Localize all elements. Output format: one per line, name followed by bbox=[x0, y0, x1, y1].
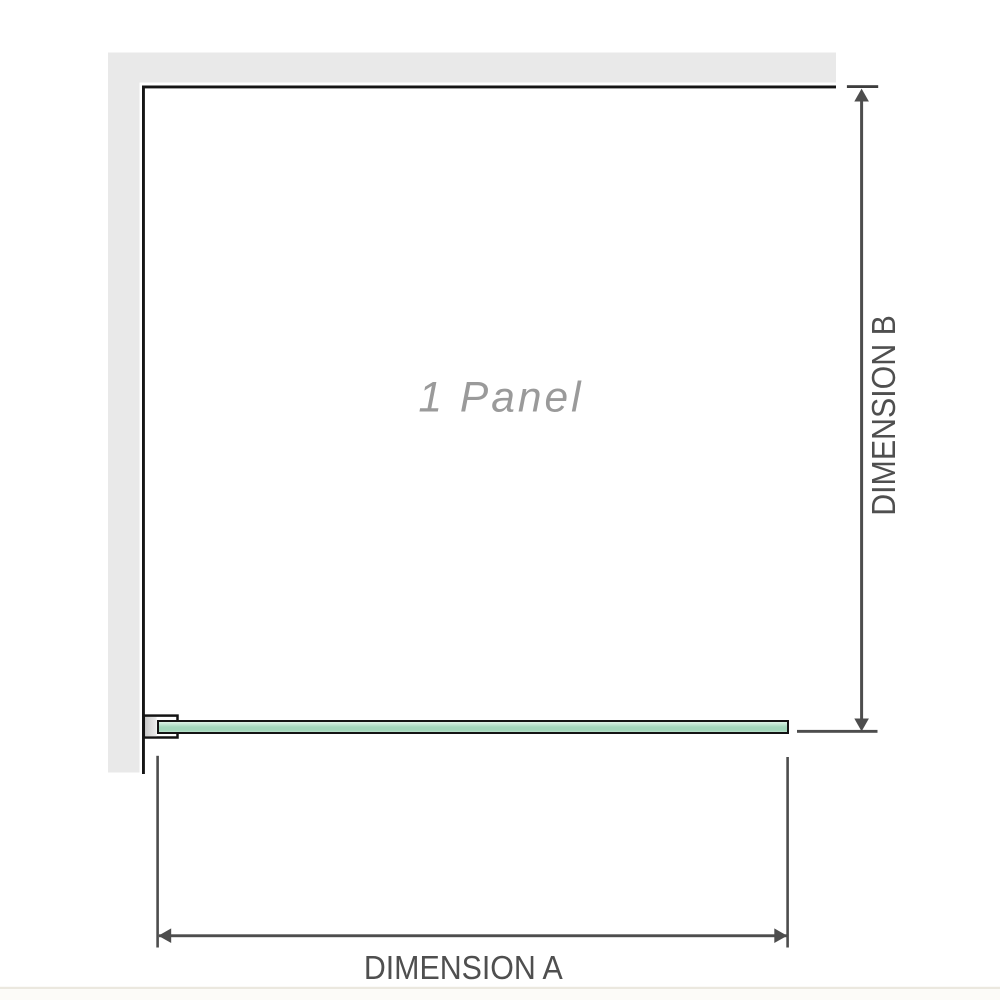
svg-text:DIMENSION A: DIMENSION A bbox=[364, 949, 564, 986]
svg-text:DIMENSION B: DIMENSION B bbox=[865, 315, 902, 516]
svg-text:1 Panel: 1 Panel bbox=[418, 375, 583, 422]
